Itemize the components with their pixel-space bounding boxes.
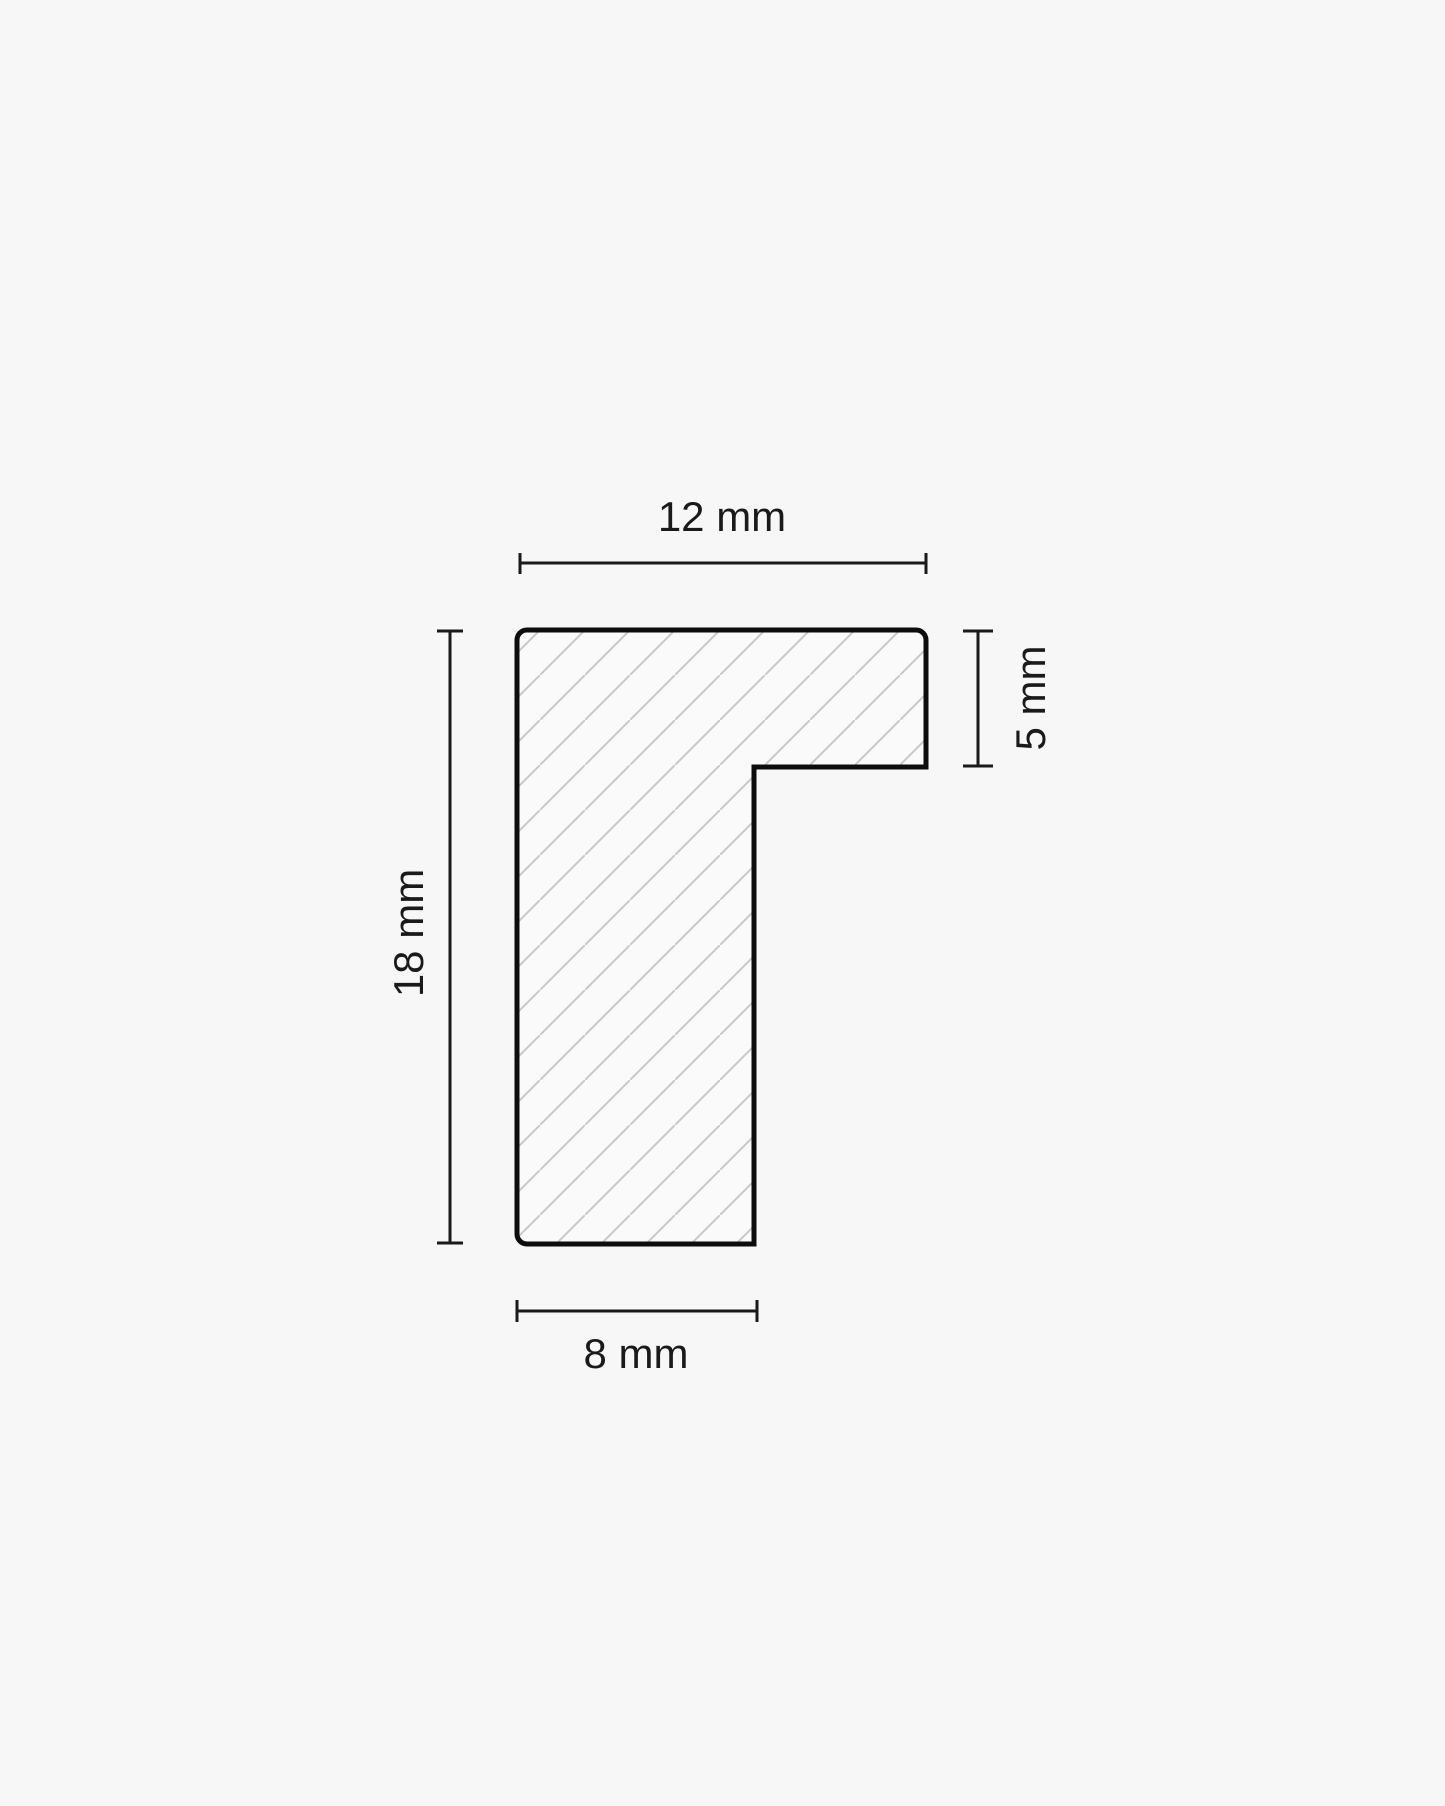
dimension-left-height: 18 mm — [385, 631, 463, 1243]
dimension-bottom-width: 8 mm — [517, 1300, 757, 1377]
profile-diagram: 12 mm 18 mm 5 mm 8 mm — [0, 0, 1445, 1806]
dimension-label-bottom-width: 8 mm — [584, 1330, 689, 1377]
dimension-label-left-height: 18 mm — [385, 869, 432, 997]
profile-outline — [517, 630, 926, 1244]
dimension-top-width: 12 mm — [520, 493, 926, 574]
dimension-label-right-rabbet: 5 mm — [1007, 646, 1054, 751]
diagram-canvas: 12 mm 18 mm 5 mm 8 mm — [0, 0, 1445, 1806]
dimension-label-top-width: 12 mm — [658, 493, 786, 540]
dimension-right-rabbet: 5 mm — [963, 631, 1054, 766]
